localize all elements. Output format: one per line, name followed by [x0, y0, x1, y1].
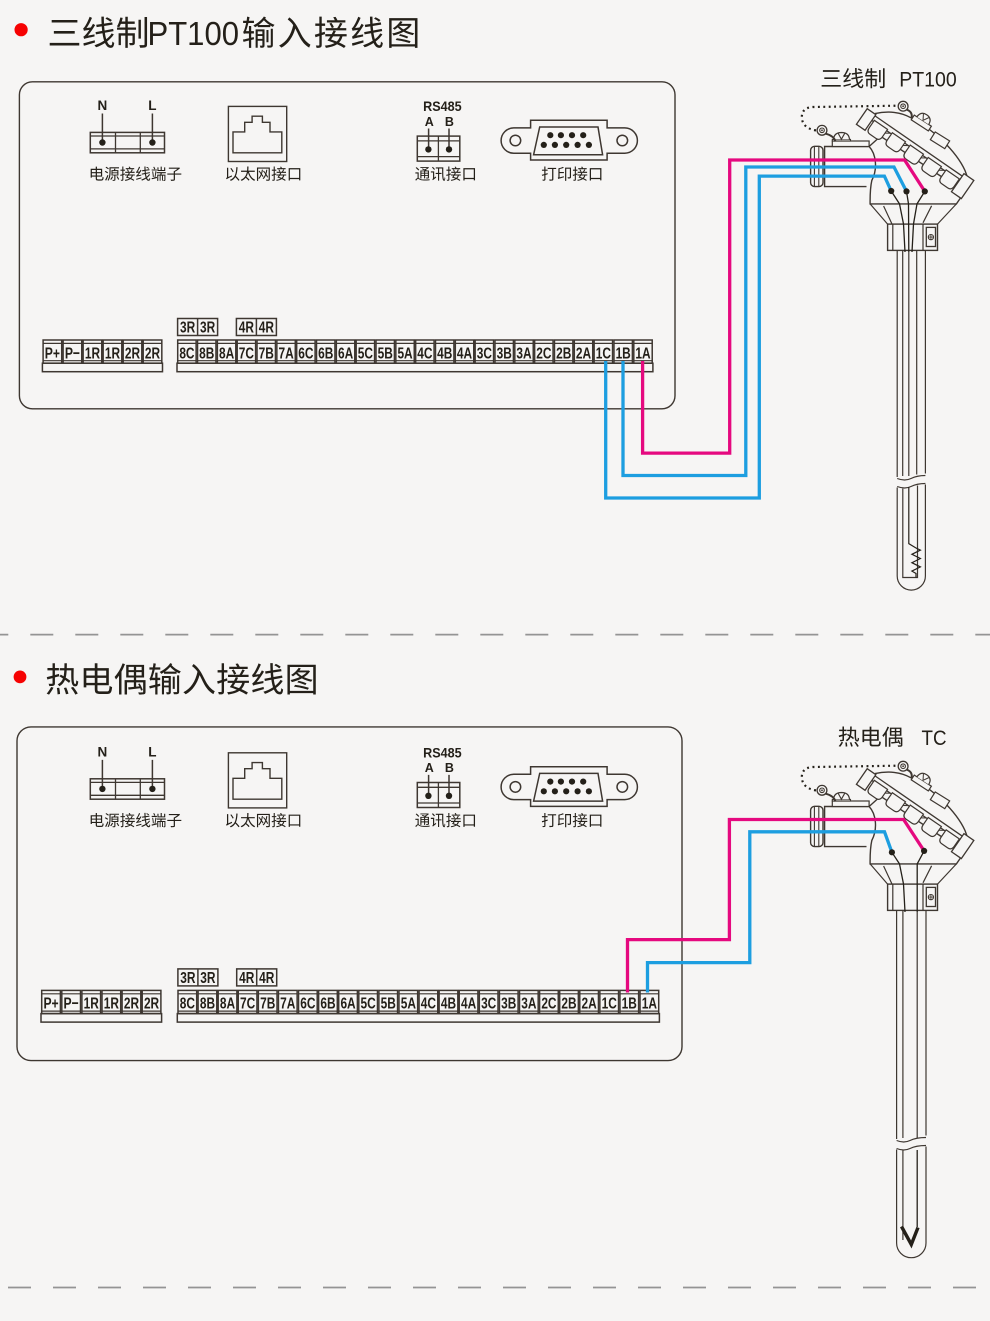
svg-text:3R: 3R [200, 970, 216, 987]
svg-text:2A: 2A [582, 996, 598, 1013]
svg-text:L: L [148, 98, 156, 113]
svg-text:1A: 1A [635, 345, 651, 362]
svg-text:B: B [445, 761, 454, 775]
svg-text:RS485: RS485 [423, 98, 462, 114]
svg-text:6B: 6B [320, 996, 335, 1013]
svg-text:5B: 5B [378, 345, 393, 362]
svg-text:3B: 3B [501, 996, 516, 1013]
svg-text:2B: 2B [556, 345, 571, 362]
svg-text:8C: 8C [180, 996, 196, 1013]
svg-text:2B: 2B [561, 996, 576, 1013]
svg-text:7A: 7A [278, 345, 294, 362]
svg-text:8B: 8B [200, 996, 215, 1013]
svg-text:6C: 6C [298, 345, 314, 362]
svg-text:4R: 4R [239, 320, 255, 337]
svg-text:5A: 5A [397, 345, 413, 362]
svg-text:2C: 2C [541, 996, 557, 1013]
svg-text:3A: 3A [521, 996, 537, 1013]
svg-text:1C: 1C [596, 345, 612, 362]
svg-text:A: A [425, 115, 434, 129]
svg-text:N: N [98, 744, 108, 759]
svg-text:2A: 2A [576, 345, 592, 362]
svg-text:4C: 4C [421, 996, 437, 1013]
svg-text:3R: 3R [180, 320, 196, 337]
svg-text:4B: 4B [437, 345, 452, 362]
svg-text:3C: 3C [481, 996, 497, 1013]
svg-text:3R: 3R [200, 320, 216, 337]
svg-text:7C: 7C [239, 345, 255, 362]
svg-text:PT100: PT100 [899, 69, 957, 92]
svg-text:7B: 7B [260, 996, 275, 1013]
svg-text:4B: 4B [441, 996, 456, 1013]
svg-text:2R: 2R [144, 996, 160, 1013]
svg-text:P+: P+ [43, 996, 58, 1013]
svg-text:8A: 8A [219, 345, 235, 362]
svg-text:3A: 3A [516, 345, 532, 362]
svg-text:1B: 1B [622, 996, 637, 1013]
svg-text:6C: 6C [300, 996, 316, 1013]
svg-text:4R: 4R [259, 970, 275, 987]
svg-text:3R: 3R [180, 970, 196, 987]
svg-text:1B: 1B [616, 345, 631, 362]
svg-text:1C: 1C [602, 996, 618, 1013]
svg-text:5B: 5B [381, 996, 396, 1013]
svg-text:1A: 1A [642, 996, 658, 1013]
svg-text:L: L [148, 744, 156, 759]
svg-text:P−: P− [65, 345, 80, 362]
svg-text:8B: 8B [199, 345, 214, 362]
svg-text:4R: 4R [259, 320, 275, 337]
svg-text:A: A [425, 761, 434, 775]
svg-text:1R: 1R [84, 996, 100, 1013]
svg-text:3C: 3C [477, 345, 493, 362]
svg-text:4C: 4C [417, 345, 433, 362]
svg-text:6A: 6A [340, 996, 356, 1013]
svg-text:2R: 2R [145, 345, 161, 362]
svg-text:2C: 2C [536, 345, 552, 362]
svg-text:P−: P− [64, 996, 79, 1013]
svg-text:1R: 1R [104, 996, 120, 1013]
svg-text:6B: 6B [318, 345, 333, 362]
svg-text:2R: 2R [125, 345, 141, 362]
svg-text:7C: 7C [240, 996, 256, 1013]
svg-text:8A: 8A [220, 996, 236, 1013]
svg-text:5A: 5A [401, 996, 417, 1013]
svg-text:P+: P+ [45, 345, 60, 362]
svg-text:1R: 1R [85, 345, 101, 362]
svg-text:7B: 7B [259, 345, 274, 362]
svg-text:4A: 4A [457, 345, 473, 362]
svg-text:RS485: RS485 [423, 745, 462, 761]
svg-text:7A: 7A [280, 996, 296, 1013]
svg-text:TC: TC [922, 727, 947, 750]
svg-text:2R: 2R [124, 996, 140, 1013]
svg-text:4R: 4R [239, 970, 255, 987]
svg-text:PT100: PT100 [148, 16, 240, 53]
svg-text:N: N [98, 98, 108, 113]
svg-text:5C: 5C [361, 996, 377, 1013]
svg-text:8C: 8C [179, 345, 195, 362]
svg-text:6A: 6A [338, 345, 354, 362]
svg-text:B: B [445, 115, 454, 129]
svg-text:4A: 4A [461, 996, 477, 1013]
svg-text:5C: 5C [358, 345, 374, 362]
svg-text:3B: 3B [497, 345, 512, 362]
svg-text:1R: 1R [105, 345, 121, 362]
